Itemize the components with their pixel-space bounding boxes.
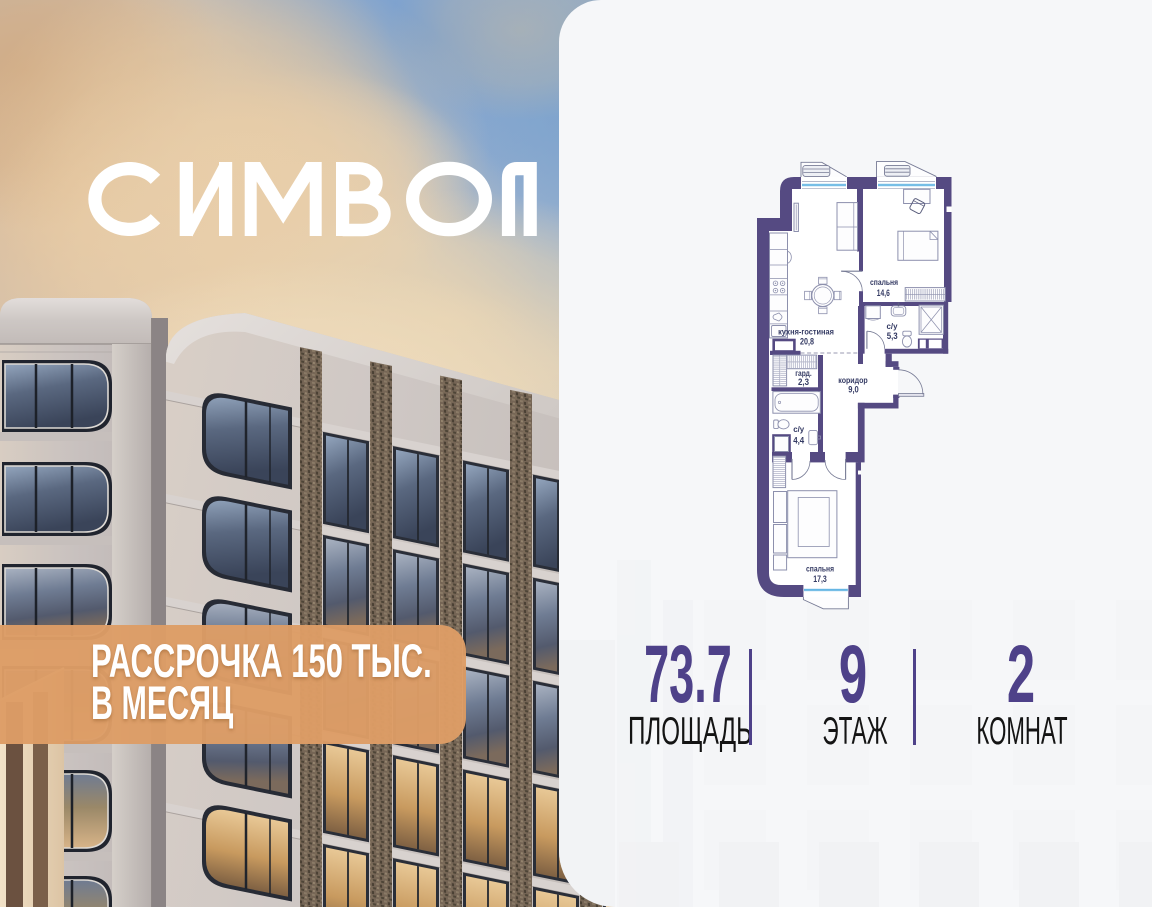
svg-text:спальня: спальня — [870, 278, 898, 287]
svg-text:спальня: спальня — [806, 565, 834, 574]
svg-text:с/у: с/у — [793, 425, 805, 434]
svg-text:17,3: 17,3 — [813, 574, 827, 584]
svg-text:20,8: 20,8 — [800, 337, 814, 347]
svg-text:кухня-гостиная: кухня-гостиная — [778, 328, 834, 337]
svg-text:2,3: 2,3 — [798, 377, 809, 387]
svg-text:4,4: 4,4 — [793, 435, 804, 445]
svg-text:5,3: 5,3 — [887, 331, 898, 341]
svg-text:14,6: 14,6 — [877, 288, 890, 298]
svg-text:9,0: 9,0 — [848, 384, 859, 394]
svg-text:с/у: с/у — [887, 322, 899, 331]
